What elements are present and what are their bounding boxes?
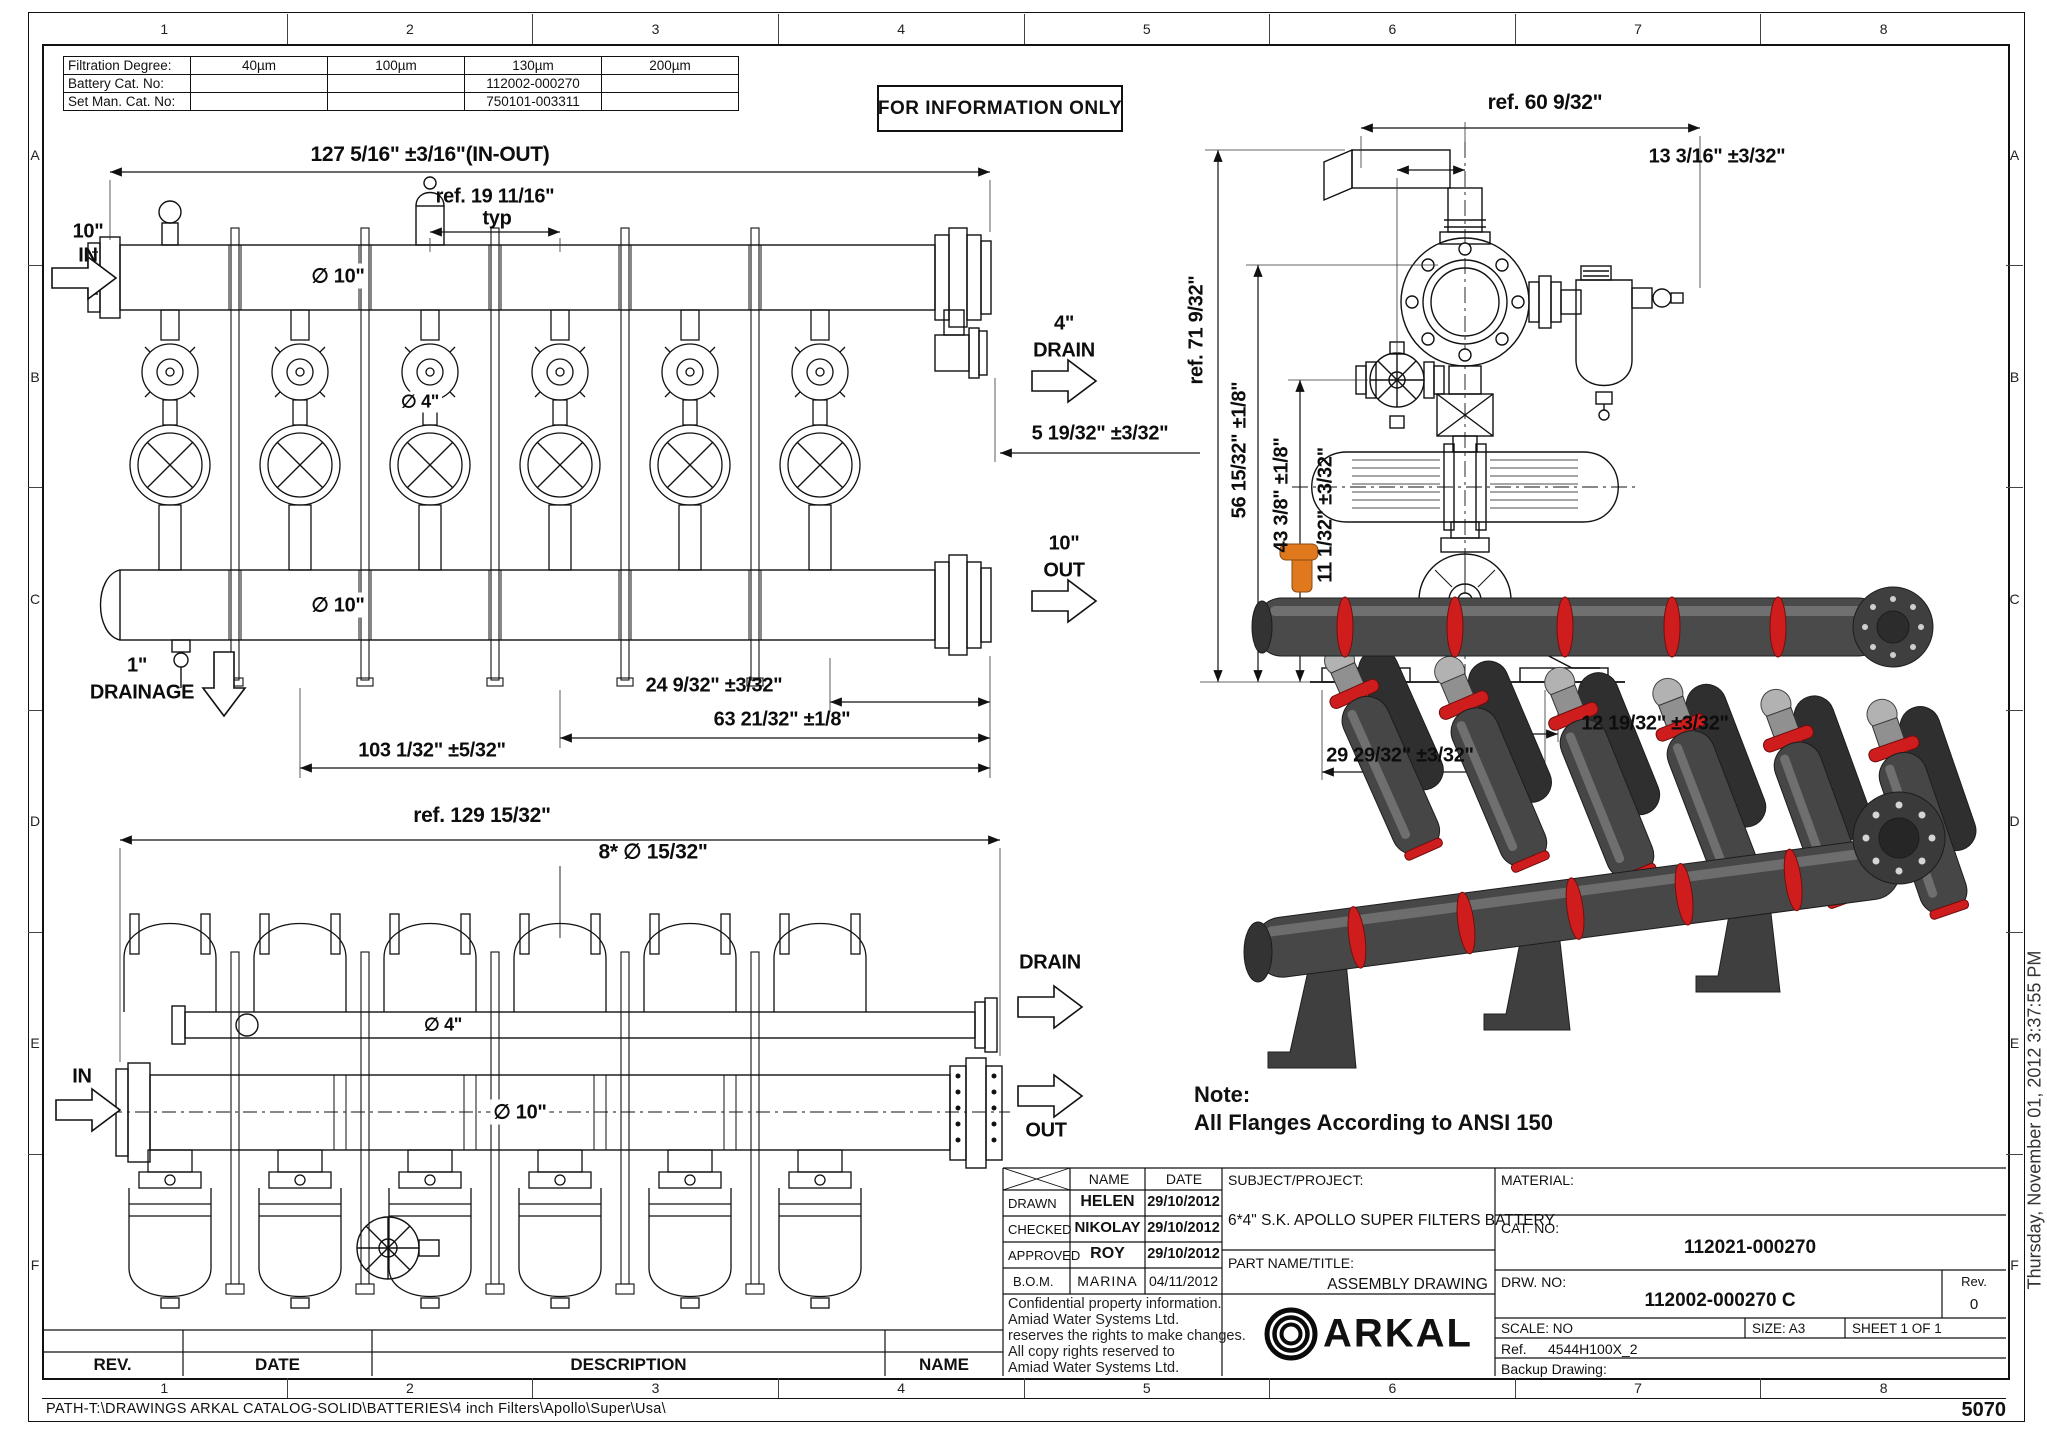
inlet-label: IN <box>78 245 97 268</box>
part-name-label: PART NAME/TITLE: <box>1228 1255 1354 1271</box>
dia-top-manifold: ∅ 10" <box>308 264 367 289</box>
drw-no-value: 112002-000270 C <box>1644 1290 1795 1312</box>
dim-ref-129: ref. 129 15/32" <box>413 804 550 828</box>
backup-drawing-label: Backup Drawing: <box>1501 1361 1607 1377</box>
note-text: All Flanges According to ANSI 150 <box>1194 1110 1553 1136</box>
plan-view-drawing <box>56 840 1082 1308</box>
dim-overall-inout: 127 5/16" ±3/16"(IN-OUT) <box>311 143 550 167</box>
dim-43: 43 3/8" ±1/8" <box>1271 437 1294 552</box>
dim-13: 13 3/16" ±3/32" <box>1649 146 1786 169</box>
dim-ref-71: ref. 71 9/32" <box>1186 276 1209 385</box>
bom-date: 04/11/2012 <box>1145 1273 1222 1289</box>
dim-8-holes: 8* ∅ 15/32" <box>598 840 707 865</box>
file-path: PATH-T:\DRAWINGS ARKAL CATALOG-SOLID\BAT… <box>46 1401 666 1417</box>
dim-63: 63 21/32" ±1/8" <box>714 709 851 732</box>
drawn-label: DRAWN <box>1008 1196 1057 1211</box>
dim-11: 11 1/32" ±3/32" <box>1315 447 1338 583</box>
cat-no-value: 112021-000270 <box>1684 1237 1816 1259</box>
rev-column-header: REV. <box>42 1355 183 1375</box>
ref-label: Ref. <box>1501 1341 1527 1357</box>
inlet-size-label: 10" <box>73 221 104 244</box>
confidential-line: reserves the rights to make changes. <box>1008 1328 1246 1344</box>
print-timestamp: Thursday, November 01, 2012 3:37:55 PM <box>2025 951 2046 1290</box>
name-column-header: NAME <box>885 1355 1003 1375</box>
dim-103: 103 1/32" ±5/32" <box>358 740 505 763</box>
drainage-size-label: 1" <box>127 655 147 678</box>
drainage-label: DRAINAGE <box>90 682 194 705</box>
part-name-value: ASSEMBLY DRAWING <box>1230 1276 1488 1294</box>
arkal-logo-text: ARKAL <box>1323 1312 1473 1357</box>
material-label: MATERIAL: <box>1501 1172 1574 1188</box>
dim-24: 24 9/32" ±3/32" <box>646 675 783 698</box>
page-number: 5070 <box>1930 1399 2006 1422</box>
rev-value: 0 <box>1948 1296 2000 1313</box>
dia-valve: ∅ 4" <box>398 392 442 413</box>
ref-value: 4544H100X_2 <box>1548 1341 1638 1357</box>
sheet-label: SHEET 1 OF 1 <box>1852 1321 1942 1336</box>
name-header: NAME <box>1076 1171 1142 1187</box>
cat-no-label: CAT. NO: <box>1501 1220 1559 1236</box>
drawn-name: HELEN <box>1070 1193 1145 1211</box>
confidential-line: Confidential property information. <box>1008 1296 1222 1312</box>
confidential-line: Amiad Water Systems Ltd. <box>1008 1360 1179 1376</box>
confidential-line: All copy rights reserved to <box>1008 1344 1175 1360</box>
date-column-header: DATE <box>183 1355 372 1375</box>
outlet-label: OUT <box>1043 560 1084 583</box>
subject-label: SUBJECT/PROJECT: <box>1228 1172 1363 1188</box>
approved-date: 29/10/2012 <box>1145 1246 1222 1262</box>
dim-drain-offset: 5 19/32" ±3/32" <box>1032 423 1169 446</box>
dim-ref-60: ref. 60 9/32" <box>1488 91 1603 115</box>
size-label: SIZE: A3 <box>1752 1321 1805 1336</box>
front-view-drawing <box>52 172 1200 778</box>
plan-drain-label: DRAIN <box>1019 952 1081 975</box>
plan-outlet-label: OUT <box>1025 1120 1066 1143</box>
dia-drain-pipe: ∅ 4" <box>421 1015 465 1036</box>
dim-12: 12 19/32" ±3/32" <box>1581 713 1728 736</box>
plan-inlet-label: IN <box>72 1066 91 1089</box>
rev-label: Rev. <box>1948 1274 2000 1289</box>
drain-label: DRAIN <box>1033 340 1095 363</box>
dim-typ-ref: ref. 19 11/16" <box>436 186 555 209</box>
bom-name: MARINA <box>1070 1273 1145 1289</box>
checked-name: NIKOLAY <box>1070 1219 1145 1236</box>
note-title: Note: <box>1194 1082 1250 1108</box>
dia-main-pipe: ∅ 10" <box>490 1100 549 1125</box>
dia-bottom-manifold: ∅ 10" <box>308 593 367 618</box>
bom-label: B.O.M. <box>1013 1274 1053 1289</box>
drain-size-label: 4" <box>1054 313 1074 336</box>
date-header: DATE <box>1148 1171 1220 1187</box>
confidential-line: Amiad Water Systems Ltd. <box>1008 1312 1179 1328</box>
dim-56: 56 15/32" ±1/8" <box>1229 382 1252 519</box>
scale-label: SCALE: NO <box>1501 1321 1573 1336</box>
approved-name: ROY <box>1070 1245 1145 1263</box>
dim-29: 29 29/32" ±3/32" <box>1326 745 1473 768</box>
drw-no-label: DRW. NO: <box>1501 1274 1566 1290</box>
checked-date: 29/10/2012 <box>1145 1220 1222 1236</box>
description-column-header: DESCRIPTION <box>372 1355 885 1375</box>
drawing-sheet: 1 2 3 4 5 6 7 8 1 2 3 4 5 6 7 8 A B C D … <box>0 0 2047 1447</box>
iso-render <box>1244 544 2000 1068</box>
drawn-date: 29/10/2012 <box>1145 1194 1222 1210</box>
outlet-size-label: 10" <box>1049 533 1080 556</box>
checked-label: CHECKED <box>1008 1222 1072 1237</box>
dim-typ: typ <box>482 208 511 231</box>
